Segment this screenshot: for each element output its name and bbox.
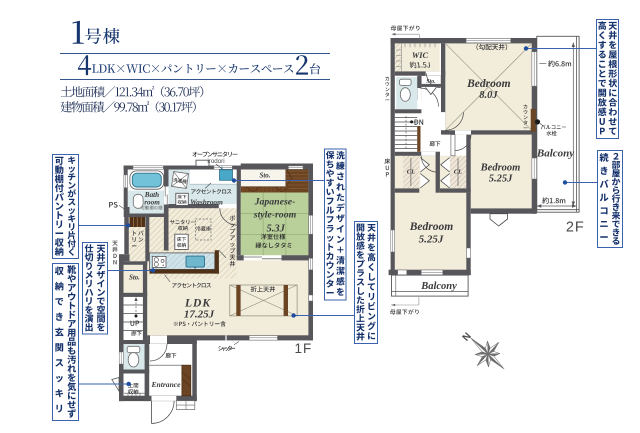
svg-text:Bedroom: Bedroom — [466, 78, 511, 90]
svg-text:5.3J: 5.3J — [267, 223, 286, 234]
svg-text:1F: 1F — [295, 341, 313, 356]
svg-text:CL: CL — [454, 169, 462, 176]
svg-text:5.25J: 5.25J — [419, 233, 444, 245]
svg-text:5.25J: 5.25J — [489, 174, 513, 185]
svg-text:Bedroom: Bedroom — [480, 163, 521, 174]
svg-text:Balcony: Balcony — [420, 281, 457, 292]
svg-text:Japanese-: Japanese- — [254, 197, 296, 208]
svg-text:Balcony: Balcony — [536, 148, 574, 160]
svg-text:Washroom: Washroom — [190, 198, 223, 207]
svg-text:2F: 2F — [566, 220, 585, 236]
svg-text:8.0J: 8.0J — [479, 90, 498, 101]
svg-text:WIC: WIC — [412, 51, 429, 60]
svg-text:room: room — [144, 199, 160, 207]
svg-text:Bedroom: Bedroom — [409, 221, 454, 233]
svg-text:Entrance: Entrance — [150, 380, 181, 389]
svg-text:Sto.: Sto. — [426, 79, 436, 85]
svg-text:Sto.: Sto. — [260, 173, 271, 180]
svg-text:style-room: style-room — [253, 210, 297, 221]
svg-text:Sto.: Sto. — [129, 275, 140, 282]
svg-text:17.25J: 17.25J — [184, 309, 215, 321]
svg-text:CL: CL — [407, 169, 415, 176]
svg-text:irodori: irodori — [207, 158, 224, 165]
